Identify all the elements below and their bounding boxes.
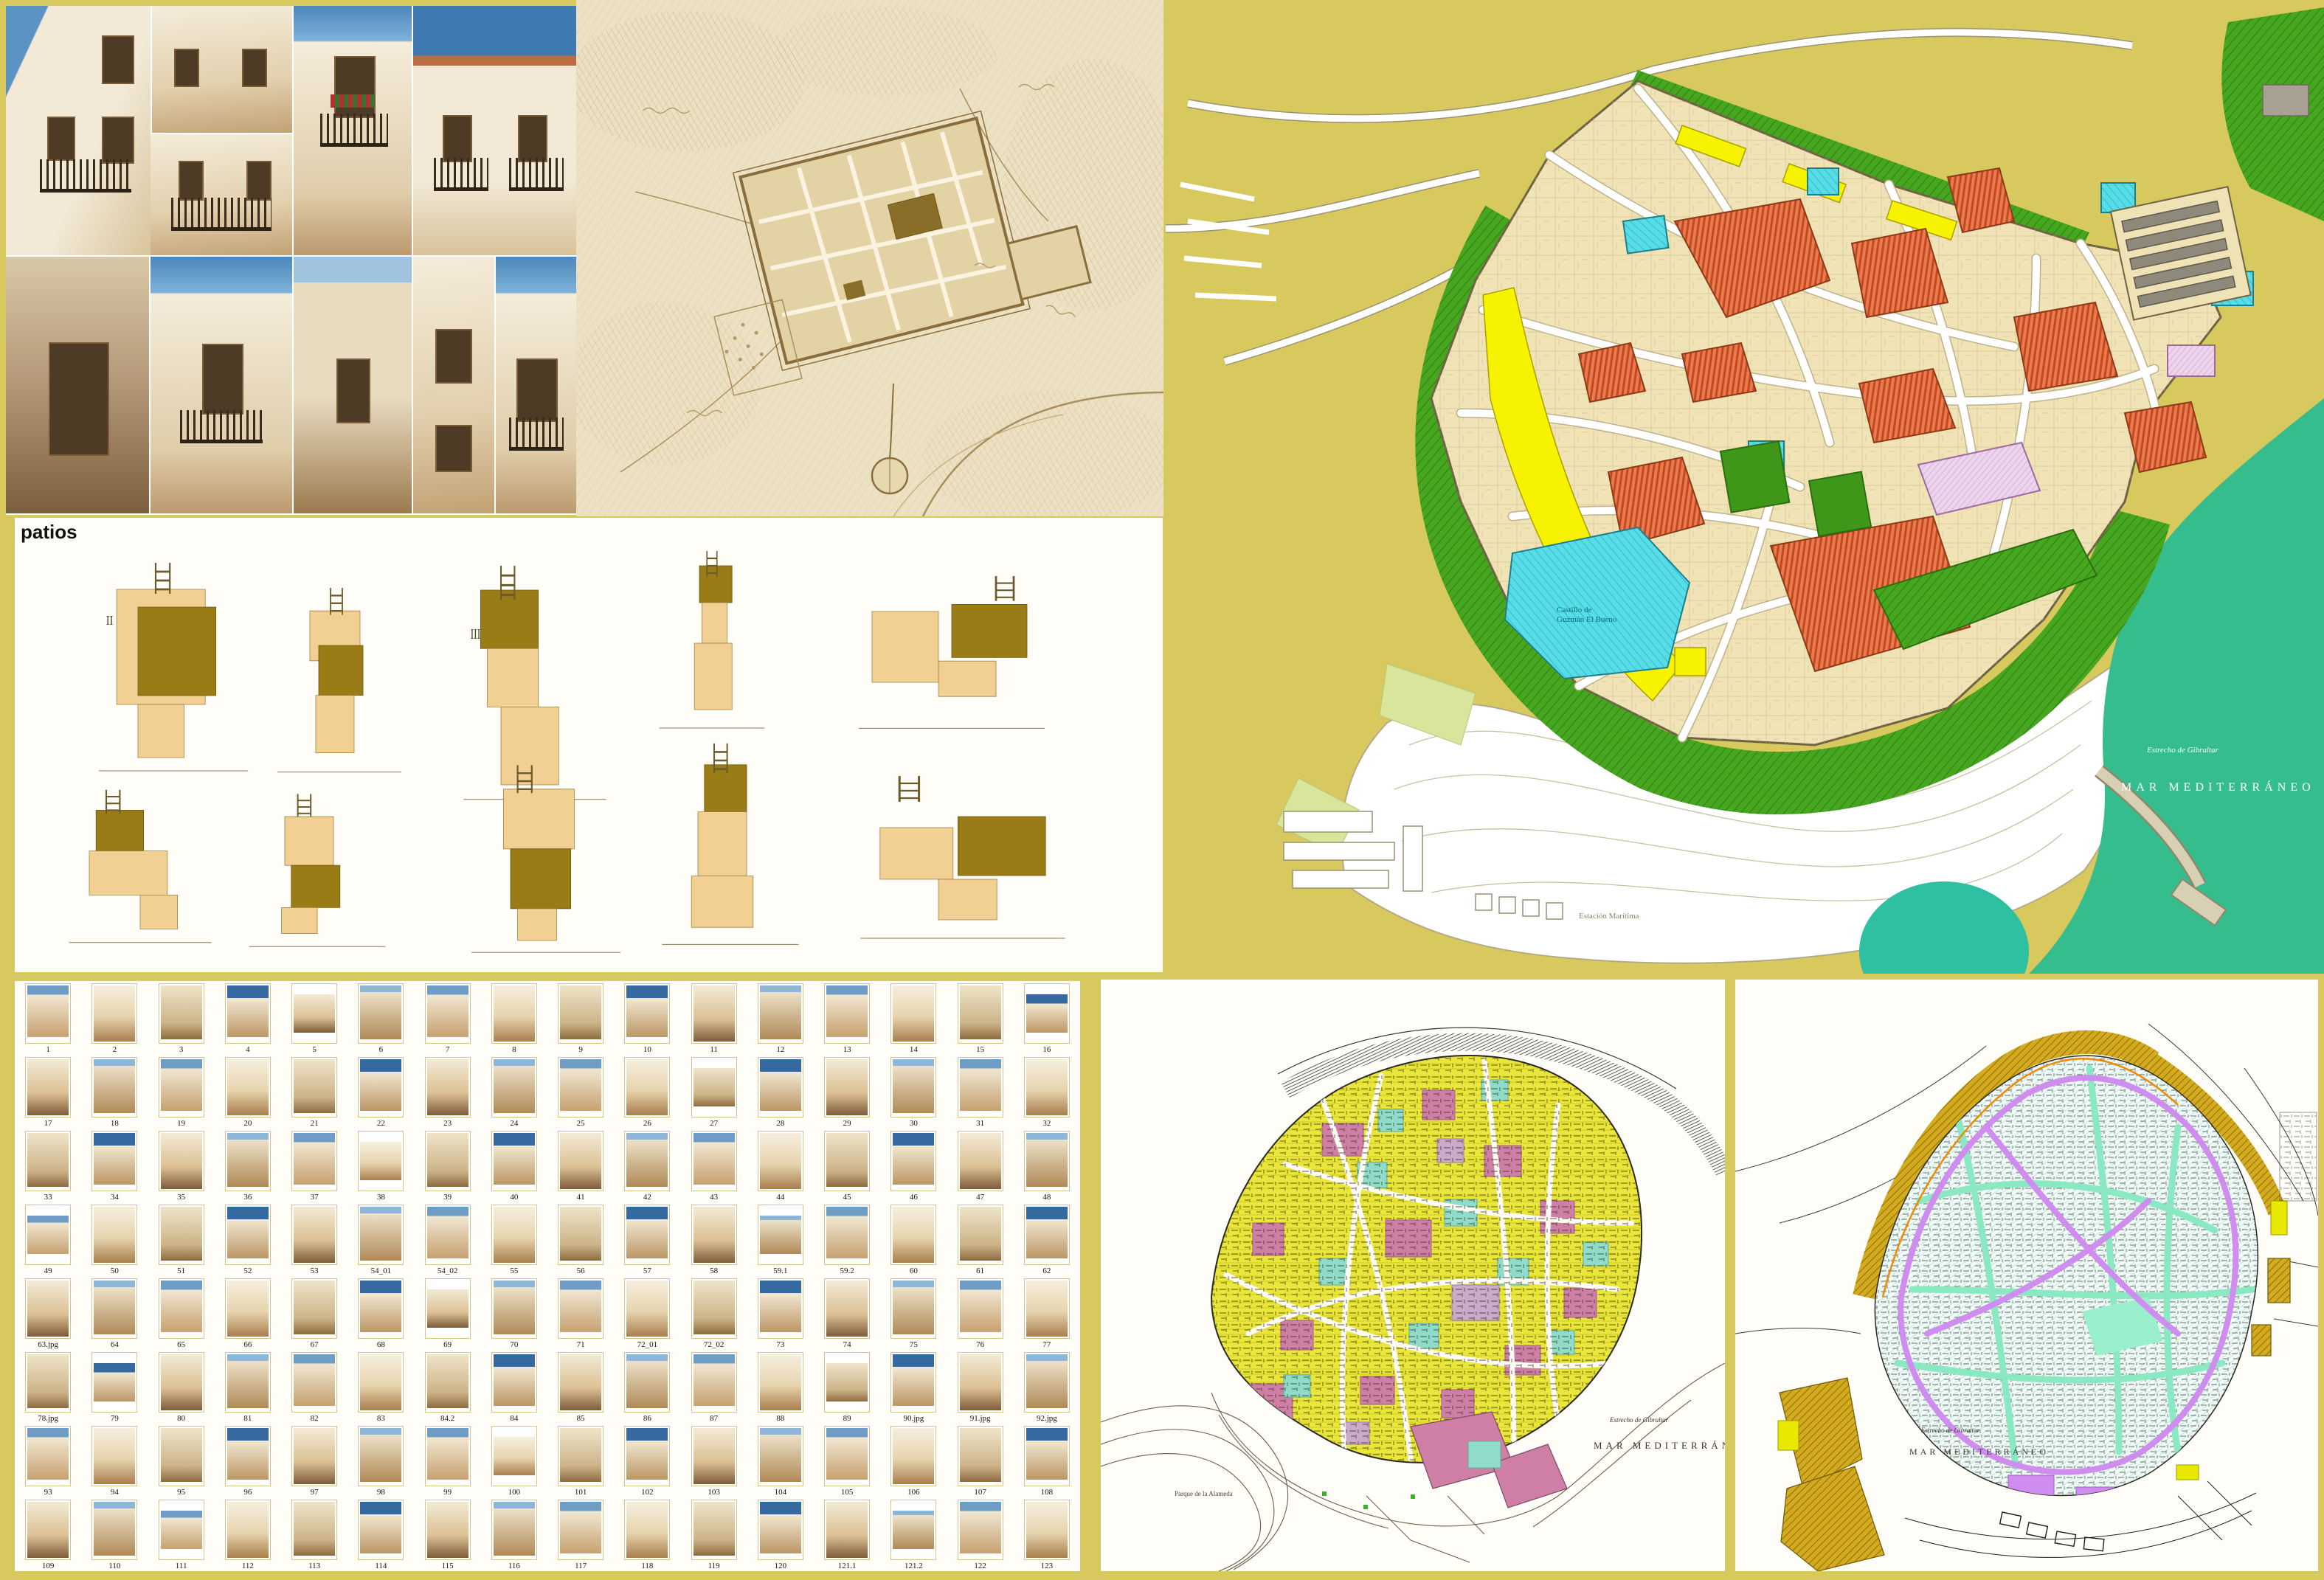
thumbnail-cell: 69 <box>415 1276 481 1350</box>
thumbnail-cell: 72_01 <box>614 1276 680 1350</box>
facade-photo-image <box>826 985 868 1037</box>
facade-photo <box>91 1131 137 1191</box>
thumbnail-cell: 64 <box>81 1276 148 1350</box>
facade-photo-image <box>94 985 135 1042</box>
thumbnail-label: 59.1 <box>773 1267 787 1275</box>
facade-photo-image <box>893 1511 934 1549</box>
facade-photo <box>291 1057 337 1118</box>
stair-ladder-icon <box>707 551 717 577</box>
thumbnail-cell: 122 <box>947 1497 1014 1571</box>
facade-photo-image <box>494 1354 535 1406</box>
facade-photo <box>691 1352 737 1413</box>
thumbnail-cell: 54_02 <box>415 1202 481 1276</box>
facade-photo <box>691 1278 737 1339</box>
thumbnail-cell: 86 <box>614 1350 680 1424</box>
thumbnail-label: 92.jpg <box>1037 1414 1057 1423</box>
facade-photo-image <box>760 1502 801 1553</box>
facade-photo-image <box>626 1133 668 1187</box>
facade-photo <box>25 983 71 1044</box>
thumbnail-cell: 97 <box>281 1424 347 1497</box>
general-plan-map: Castillo de Guzmán El Bueno Estación Mar… <box>1166 0 2324 974</box>
facade-photo <box>358 983 404 1044</box>
thumbnail-label: 82 <box>311 1414 319 1423</box>
facade-photo-image <box>427 1207 468 1258</box>
patio-plan-diagram <box>236 791 398 953</box>
thumbnail-cell: 39 <box>415 1129 481 1202</box>
roman-numeral-mark: III <box>471 626 481 642</box>
thumbnail-cell: 29 <box>814 1055 880 1129</box>
facade-photo-image <box>960 1207 1001 1261</box>
facade-photo <box>425 983 471 1044</box>
thumbnail-cell: 74 <box>814 1276 880 1350</box>
thumbnail-label: 27 <box>710 1119 718 1128</box>
facade-photo <box>291 1500 337 1560</box>
thumbnail-label: 83 <box>377 1414 385 1423</box>
facade-photo <box>824 1057 870 1118</box>
facade-photo-image <box>27 1502 69 1558</box>
thumbnail-cell: 67 <box>281 1276 347 1350</box>
facade-photo <box>958 1057 1003 1118</box>
facade-photo-image <box>161 1207 202 1261</box>
thumbnail-cell: 101 <box>547 1424 614 1497</box>
facade-photo <box>425 1057 471 1118</box>
thumbnail-label: 117 <box>575 1562 587 1570</box>
facade-photo <box>491 1205 537 1265</box>
facade-photo-image <box>826 1428 868 1480</box>
facade-photo <box>491 1278 537 1339</box>
thumbnail-label: 33 <box>44 1193 52 1202</box>
street-photo <box>6 257 149 513</box>
thumbnail-cell: 107 <box>947 1424 1014 1497</box>
facade-photo <box>491 1057 537 1118</box>
facade-photo <box>291 983 337 1044</box>
thumbnail-label: 54_02 <box>438 1267 458 1275</box>
facade-photo-image <box>826 1502 868 1558</box>
thumbnail-cell: 62 <box>1014 1202 1080 1276</box>
facade-photo-image <box>560 1281 601 1332</box>
thumbnail-label: 21 <box>311 1119 319 1128</box>
facade-photo-image <box>94 1059 135 1113</box>
facade-photo-image <box>294 1133 335 1185</box>
thumbnail-label: 56 <box>577 1267 585 1275</box>
thumbnail-label: 32 <box>1042 1119 1051 1128</box>
thumbnail-label: 68 <box>377 1340 385 1349</box>
facade-photo <box>291 1426 337 1486</box>
facade-photo-image <box>893 1428 934 1484</box>
strait-label-right: Estrecho de Gibraltar <box>1920 1427 1980 1434</box>
facade-photo <box>159 1352 204 1413</box>
thumbnail-label: 61 <box>976 1267 984 1275</box>
thumbnail-cell: 119 <box>681 1497 747 1571</box>
thumbnail-label: 44 <box>776 1193 784 1202</box>
facade-photo <box>425 1131 471 1191</box>
thumbnail-label: 97 <box>311 1488 319 1497</box>
thumbnail-label: 43 <box>710 1193 718 1202</box>
thumbnail-label: 31 <box>976 1119 984 1128</box>
infrastructure-plan-panel: Estrecho de Gibraltar MAR MEDITERRÁNEO <box>1735 980 2318 1571</box>
thumbnail-cell: 80 <box>148 1350 215 1424</box>
thumbnail-cell: 18 <box>81 1055 148 1129</box>
thumbnail-cell: 102 <box>614 1424 680 1497</box>
balcony-railing <box>509 417 564 451</box>
facade-photo <box>1024 1131 1070 1191</box>
thumbnail-cell: 89 <box>814 1350 880 1424</box>
patio-courtyard <box>952 604 1027 657</box>
thumbnail-cell: 65 <box>148 1276 215 1350</box>
thumbnail-label: 3 <box>179 1045 184 1054</box>
facade-photo <box>358 1205 404 1265</box>
facade-photo-image <box>161 1354 202 1410</box>
facade-photo-image <box>893 1133 934 1185</box>
facade-photo-image <box>427 1133 468 1187</box>
street-photo <box>6 6 151 255</box>
facade-photo-image <box>960 1133 1001 1189</box>
facade-photo <box>558 1426 604 1486</box>
thumbnail-cell: 91.jpg <box>947 1350 1014 1424</box>
facade-photo-image <box>227 1281 269 1337</box>
facade-photo-image <box>560 1502 601 1553</box>
facade-photo <box>890 1352 936 1413</box>
facade-photo-image <box>626 1354 668 1408</box>
stair-ladder-icon <box>899 776 919 802</box>
thumbnail-label: 121.2 <box>905 1562 923 1570</box>
thumbnail-label: 98 <box>377 1488 385 1497</box>
patio-plan-diagram <box>841 761 1085 946</box>
thumbnail-label: 93 <box>44 1488 52 1497</box>
facade-photo-image <box>94 1133 135 1185</box>
thumbnail-label: 38 <box>377 1193 385 1202</box>
thumbnail-label: 60 <box>910 1267 918 1275</box>
thumbnail-cell: 34 <box>81 1129 148 1202</box>
thumbnail-cell: 53 <box>281 1202 347 1276</box>
thumbnail-cell: 36 <box>215 1129 281 1202</box>
window-or-door <box>49 342 109 456</box>
thumbnail-label: 55 <box>510 1267 518 1275</box>
sea-label-mid: MAR MEDITERRÁNEO <box>1594 1440 1725 1451</box>
thumbnail-label: 63.jpg <box>38 1340 58 1349</box>
facade-photo <box>425 1205 471 1265</box>
facade-photo <box>159 1426 204 1486</box>
facade-photo <box>358 1057 404 1118</box>
patios-title: patios <box>21 521 77 544</box>
thumbnail-cell: 92.jpg <box>1014 1350 1080 1424</box>
facade-photo <box>25 1205 71 1265</box>
facade-photo <box>624 983 670 1044</box>
balcony-railing <box>40 159 131 193</box>
facade-photo <box>91 1057 137 1118</box>
window-or-door <box>242 49 267 87</box>
thumbnail-label: 78.jpg <box>38 1414 58 1423</box>
thumbnail-cell: 95 <box>148 1424 215 1497</box>
facade-photo <box>291 1352 337 1413</box>
thumbnail-label: 17 <box>44 1119 52 1128</box>
thumbnail-cell: 10 <box>614 981 680 1055</box>
facade-photo <box>958 1205 1003 1265</box>
facade-photo <box>691 1426 737 1486</box>
thumbnail-label: 109 <box>42 1562 55 1570</box>
thumbnail-cell: 41 <box>547 1129 614 1202</box>
facade-photo <box>691 1057 737 1118</box>
thumbnail-cell: 60 <box>880 1202 947 1276</box>
facade-photo <box>691 1500 737 1560</box>
balcony-railing <box>180 410 263 443</box>
facade-photo-image <box>626 1428 668 1480</box>
facade-photo <box>624 1205 670 1265</box>
facade-photo-image <box>494 1437 535 1475</box>
facade-photo <box>758 1278 803 1339</box>
thumbnail-label: 75 <box>910 1340 918 1349</box>
thumbnail-cell: 26 <box>614 1055 680 1129</box>
thumbnail-cell: 88 <box>747 1350 814 1424</box>
facade-photo-image <box>626 1502 668 1558</box>
thumbnail-cell: 116 <box>481 1497 547 1571</box>
thumbnail-label: 76 <box>976 1340 984 1349</box>
house-footprint <box>872 611 938 682</box>
thumbnail-cell: 46 <box>880 1129 947 1202</box>
thumbnail-cell: 84.2 <box>415 1350 481 1424</box>
facade-photo-image <box>427 985 468 1037</box>
patio-plan-diagram <box>649 739 812 953</box>
facade-photo-image <box>960 1428 1001 1482</box>
window-or-door <box>179 161 204 201</box>
facade-photo-image <box>227 1059 269 1115</box>
facade-photo <box>25 1352 71 1413</box>
typology-plan-panel: Parque de la Alameda Estrecho de Gibralt… <box>1101 980 1725 1571</box>
facade-photo <box>159 1057 204 1118</box>
facade-photo-image <box>227 1502 269 1558</box>
facade-photo-image <box>294 1428 335 1484</box>
thumbnail-cell: 45 <box>814 1129 880 1202</box>
street-photo <box>152 6 292 133</box>
thumbnail-cell: 118 <box>614 1497 680 1571</box>
thumbnail-label: 4 <box>246 1045 250 1054</box>
patio-courtyard <box>319 645 363 696</box>
thumbnail-cell: 106 <box>880 1424 947 1497</box>
thumbnail-label: 121.1 <box>838 1562 857 1570</box>
thumbnail-label: 12 <box>776 1045 784 1054</box>
thumbnail-cell: 4 <box>215 981 281 1055</box>
facade-photo-image <box>27 1216 69 1254</box>
thumbnail-label: 42 <box>643 1193 651 1202</box>
facade-photo-image <box>94 1207 135 1263</box>
thumbnail-label: 72_02 <box>704 1340 724 1349</box>
thumbnail-label: 23 <box>443 1119 452 1128</box>
thumbnail-cell: 13 <box>814 981 880 1055</box>
facade-photo <box>558 1057 604 1118</box>
balcony-railing <box>171 198 272 231</box>
patio-plan-diagram <box>55 780 225 949</box>
thumbnail-cell: 61 <box>947 1202 1014 1276</box>
thumbnail-label: 116 <box>508 1562 520 1570</box>
sea-label: MAR MEDITERRÁNEO <box>2121 780 2315 794</box>
thumbnail-cell: 48 <box>1014 1129 1080 1202</box>
stair-ladder-icon <box>518 765 532 793</box>
house-footprint <box>140 895 178 929</box>
thumbnail-label: 84 <box>510 1414 518 1423</box>
facade-photo-image <box>760 985 801 1039</box>
house-footprint <box>282 907 317 933</box>
facade-photo <box>958 1131 1003 1191</box>
thumbnail-cell: 12 <box>747 981 814 1055</box>
thumbnail-label: 9 <box>578 1045 583 1054</box>
facade-photo <box>425 1500 471 1560</box>
facade-photo <box>358 1426 404 1486</box>
facade-photo-image <box>94 1428 135 1484</box>
facade-photo <box>558 1352 604 1413</box>
thumbnail-label: 119 <box>708 1562 720 1570</box>
facade-photo <box>159 1205 204 1265</box>
facade-photo-image <box>826 1207 868 1258</box>
thumbnail-label: 113 <box>308 1562 320 1570</box>
thumbnail-label: 99 <box>443 1488 452 1497</box>
thumbnail-cell: 42 <box>614 1129 680 1202</box>
facade-photo-image <box>494 1281 535 1334</box>
thumbnail-cell: 17 <box>15 1055 81 1129</box>
thumbnail-label: 29 <box>843 1119 851 1128</box>
house-footprint <box>316 696 354 753</box>
thumbnail-cell: 15 <box>947 981 1014 1055</box>
facade-photo-image <box>694 1428 735 1484</box>
facade-photo <box>159 983 204 1044</box>
thumbnail-label: 25 <box>577 1119 585 1128</box>
thumbnail-cell: 121.1 <box>814 1497 880 1571</box>
facade-photo-image <box>760 1428 801 1482</box>
facade-photo <box>91 1352 137 1413</box>
thumbnail-label: 52 <box>243 1267 252 1275</box>
thumbnail-label: 24 <box>510 1119 518 1128</box>
facade-photo-image <box>560 1207 601 1261</box>
facade-photo <box>758 1500 803 1560</box>
facade-photo <box>159 1131 204 1191</box>
thumbnail-label: 102 <box>641 1488 654 1497</box>
thumbnail-label: 70 <box>510 1340 518 1349</box>
thumbnail-cell: 59.1 <box>747 1202 814 1276</box>
thumbnail-label: 65 <box>177 1340 185 1349</box>
patio-courtyard <box>699 566 732 603</box>
thumbnail-cell: 40 <box>481 1129 547 1202</box>
thumbnail-cell: 3 <box>148 981 215 1055</box>
thumbnail-cell: 83 <box>347 1350 414 1424</box>
thumbnail-cell: 72_02 <box>681 1276 747 1350</box>
thumbnail-label: 118 <box>641 1562 653 1570</box>
patio-plan-diagram: II <box>85 558 262 780</box>
thumbnail-cell: 54_01 <box>347 1202 414 1276</box>
street-photo <box>151 257 292 513</box>
thumbnail-cell: 8 <box>481 981 547 1055</box>
facade-photo <box>758 1352 803 1413</box>
thumbnail-label: 122 <box>974 1562 986 1570</box>
facade-photo <box>491 1500 537 1560</box>
facade-photo <box>758 1426 803 1486</box>
thumbnail-cell: 19 <box>148 1055 215 1129</box>
facade-photo <box>824 1500 870 1560</box>
stair-ladder-icon <box>714 744 727 774</box>
stair-ladder-icon <box>298 794 311 817</box>
patio-plan-diagram <box>457 761 634 960</box>
thumbnail-label: 114 <box>375 1562 387 1570</box>
street-photo <box>294 257 412 513</box>
facade-photo <box>291 1131 337 1191</box>
facade-photo-image <box>294 1502 335 1556</box>
facade-photo <box>691 1131 737 1191</box>
thumbnail-cell: 120 <box>747 1497 814 1571</box>
facade-photo <box>225 1500 271 1560</box>
facade-photo <box>558 1500 604 1560</box>
thumbnail-label: 90.jpg <box>903 1414 924 1423</box>
thumbnail-label: 91.jpg <box>970 1414 991 1423</box>
facade-photo <box>624 1057 670 1118</box>
facade-photo <box>225 1205 271 1265</box>
window-or-door <box>336 358 370 423</box>
thumbnail-cell: 110 <box>81 1497 148 1571</box>
thumbnail-label: 115 <box>442 1562 454 1570</box>
facade-photo <box>1024 1278 1070 1339</box>
thumbnail-label: 96 <box>243 1488 252 1497</box>
street-photo <box>413 6 577 255</box>
balcony-railing <box>320 114 388 147</box>
house-footprint <box>938 661 996 696</box>
facade-photo <box>225 1426 271 1486</box>
stair-ladder-icon <box>156 563 170 594</box>
facade-photo-image <box>494 1059 535 1113</box>
thumbnail-cell: 70 <box>481 1276 547 1350</box>
facade-photo-image <box>494 1502 535 1556</box>
facade-photo <box>25 1500 71 1560</box>
facade-photo <box>91 983 137 1044</box>
facade-photo <box>25 1278 71 1339</box>
facade-photo-image <box>294 1281 335 1334</box>
facade-photo-image <box>560 985 601 1039</box>
strait-label-mid: Estrecho de Gibraltar <box>1609 1416 1669 1424</box>
thumbnail-cell: 77 <box>1014 1276 1080 1350</box>
patio-plan-diagram <box>266 588 413 780</box>
strait-label: Estrecho de Gibraltar <box>2146 746 2218 755</box>
facade-photo <box>91 1500 137 1560</box>
facade-photo <box>890 1131 936 1191</box>
facade-photo-image <box>626 1059 668 1115</box>
thumbnail-label: 104 <box>775 1488 787 1497</box>
facade-photo <box>425 1278 471 1339</box>
facade-photo <box>159 1500 204 1560</box>
thumbnail-label: 18 <box>111 1119 119 1128</box>
facade-photo-image <box>760 1059 801 1111</box>
facade-photo <box>624 1131 670 1191</box>
thumbnail-label: 41 <box>577 1193 585 1202</box>
thumbnail-label: 11 <box>710 1045 718 1054</box>
facade-photo <box>824 1352 870 1413</box>
thumbnail-label: 36 <box>243 1193 252 1202</box>
facade-photo-image <box>893 985 934 1042</box>
facade-photo <box>1024 1057 1070 1118</box>
thumbnail-label: 120 <box>775 1562 787 1570</box>
facade-photo-image <box>1026 1133 1068 1187</box>
thumbnail-label: 66 <box>243 1340 252 1349</box>
facade-photo-image <box>626 985 668 1037</box>
facade-photo <box>491 1352 537 1413</box>
thumbnail-label: 51 <box>177 1267 185 1275</box>
thumbnail-cell: 112 <box>215 1497 281 1571</box>
facade-photo-image <box>826 1363 868 1401</box>
facade-photo-image <box>960 1281 1001 1332</box>
thumbnail-label: 62 <box>1042 1267 1051 1275</box>
alameda-park-label: Parque de la Alameda <box>1175 1490 1233 1497</box>
facade-photo-image <box>161 1281 202 1332</box>
thumbnail-cell: 114 <box>347 1497 414 1571</box>
stair-ladder-icon <box>996 576 1014 601</box>
facade-photo <box>824 1205 870 1265</box>
facade-photo <box>25 1131 71 1191</box>
thumbnail-cell: 21 <box>281 1055 347 1129</box>
